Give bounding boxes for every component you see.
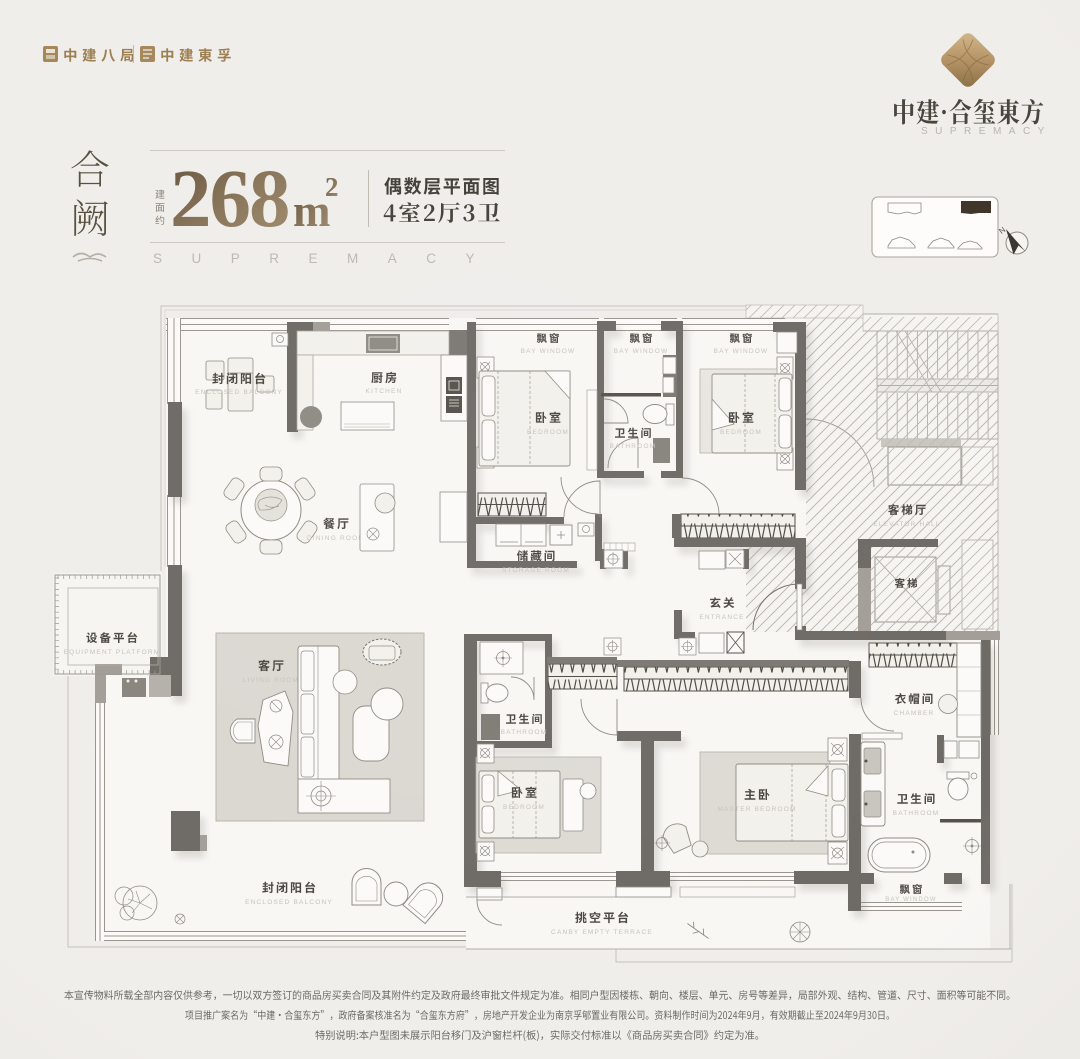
svg-text:BATHROOM: BATHROOM: [610, 443, 657, 450]
svg-text:MASTER BEDROOM: MASTER BEDROOM: [717, 806, 796, 813]
svg-text:BAY WINDOW: BAY WINDOW: [521, 348, 576, 355]
svg-text:BAY WINDOW: BAY WINDOW: [614, 348, 669, 355]
svg-text:LIVING ROOM: LIVING ROOM: [243, 677, 300, 684]
svg-text:ENCLOSED BALCONY: ENCLOSED BALCONY: [245, 899, 333, 906]
svg-text:EQUIPMENT PLATFORM: EQUIPMENT PLATFORM: [64, 649, 161, 656]
svg-text:SUPREMACY: SUPREMACY: [921, 126, 1052, 137]
svg-text:CANBY EMPTY TERRACE: CANBY EMPTY TERRACE: [551, 929, 653, 936]
svg-text:CHAMBER: CHAMBER: [894, 710, 935, 717]
svg-text:BAY WINDOW: BAY WINDOW: [714, 348, 769, 355]
svg-text:268: 268: [170, 152, 289, 244]
svg-text:DINING ROOM: DINING ROOM: [307, 535, 365, 542]
svg-text:BEDROOM: BEDROOM: [503, 804, 545, 811]
svg-text:BATHROOM: BATHROOM: [893, 810, 940, 817]
svg-text:BEDROOM: BEDROOM: [720, 429, 762, 436]
svg-text:BATHROOM: BATHROOM: [501, 729, 548, 736]
svg-text:SUPREMACY: SUPREMACY: [153, 251, 504, 266]
svg-text:ENTRANCE: ENTRANCE: [699, 614, 744, 621]
svg-text:STORAGE ROOM: STORAGE ROOM: [502, 567, 570, 574]
svg-text:KITCHEN: KITCHEN: [366, 388, 403, 395]
svg-text:ENCLOSED BALCONY: ENCLOSED BALCONY: [195, 389, 283, 396]
svg-text:BAY WINDOW: BAY WINDOW: [885, 897, 936, 903]
svg-text:2: 2: [325, 172, 339, 202]
svg-text:ELEVATOR HALL: ELEVATOR HALL: [873, 521, 940, 528]
svg-text:BEDROOM: BEDROOM: [527, 429, 569, 436]
